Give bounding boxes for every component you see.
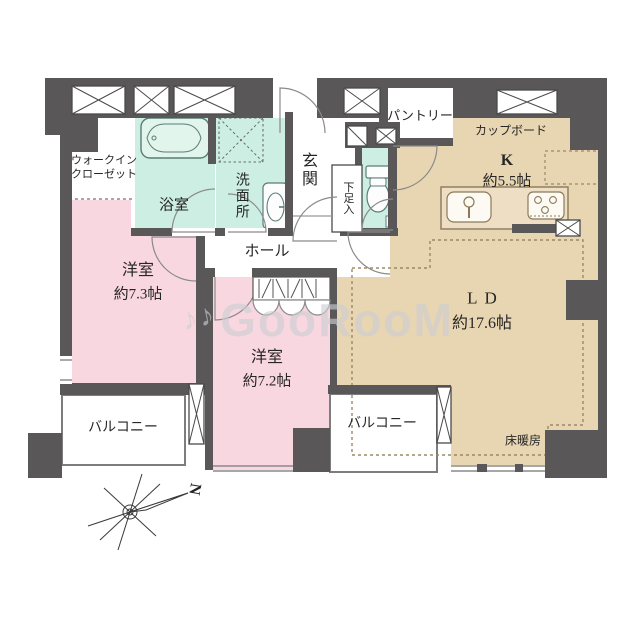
kitchen-sink-icon	[447, 192, 491, 222]
label-hall: ホール	[244, 243, 289, 262]
stove-icon	[528, 192, 564, 219]
label-bedroom2-size: 約7.2帖	[243, 373, 292, 392]
label-bedroom1-size: 約7.3帖	[114, 286, 163, 305]
wash-basin-icon	[263, 183, 288, 229]
floor-plan: ウォークイン クローゼット 浴室 洗面所 玄関 下足入 パントリー カップボード…	[0, 0, 640, 640]
watermark: ♪♪ GooRooM	[182, 293, 454, 347]
label-cupboard: カップボード	[475, 124, 547, 139]
label-shoe-cabinet: 下足入	[340, 182, 354, 215]
label-walk-in-closet: ウォークイン クローゼット	[71, 154, 137, 182]
label-balcony-center: バルコニー	[347, 415, 417, 433]
bathtub-icon	[141, 118, 209, 158]
label-bathroom: 浴室	[159, 197, 189, 216]
kitchen-counter	[441, 187, 568, 229]
label-kitchen: K	[501, 151, 513, 171]
label-bedroom2: 洋室	[251, 348, 283, 368]
label-balcony-left: バルコニー	[88, 419, 158, 437]
compass-north-label: N	[184, 482, 204, 497]
watermark-text: GooRooM	[220, 293, 454, 347]
label-bedroom1: 洋室	[122, 261, 154, 281]
label-living-dining-size: 約17.6帖	[452, 314, 512, 334]
label-entrance: 玄関	[297, 152, 317, 188]
label-floor-heating: 床暖房	[505, 434, 541, 449]
compass-icon	[88, 474, 188, 550]
label-pantry: パントリー	[387, 108, 453, 124]
label-kitchen-size: 約5.5帖	[483, 173, 532, 192]
balcony-center	[330, 394, 437, 472]
label-washroom: 洗面所	[232, 172, 250, 220]
watermark-notes-icon: ♪♪	[179, 300, 218, 336]
label-living-dining: LD	[460, 287, 504, 308]
